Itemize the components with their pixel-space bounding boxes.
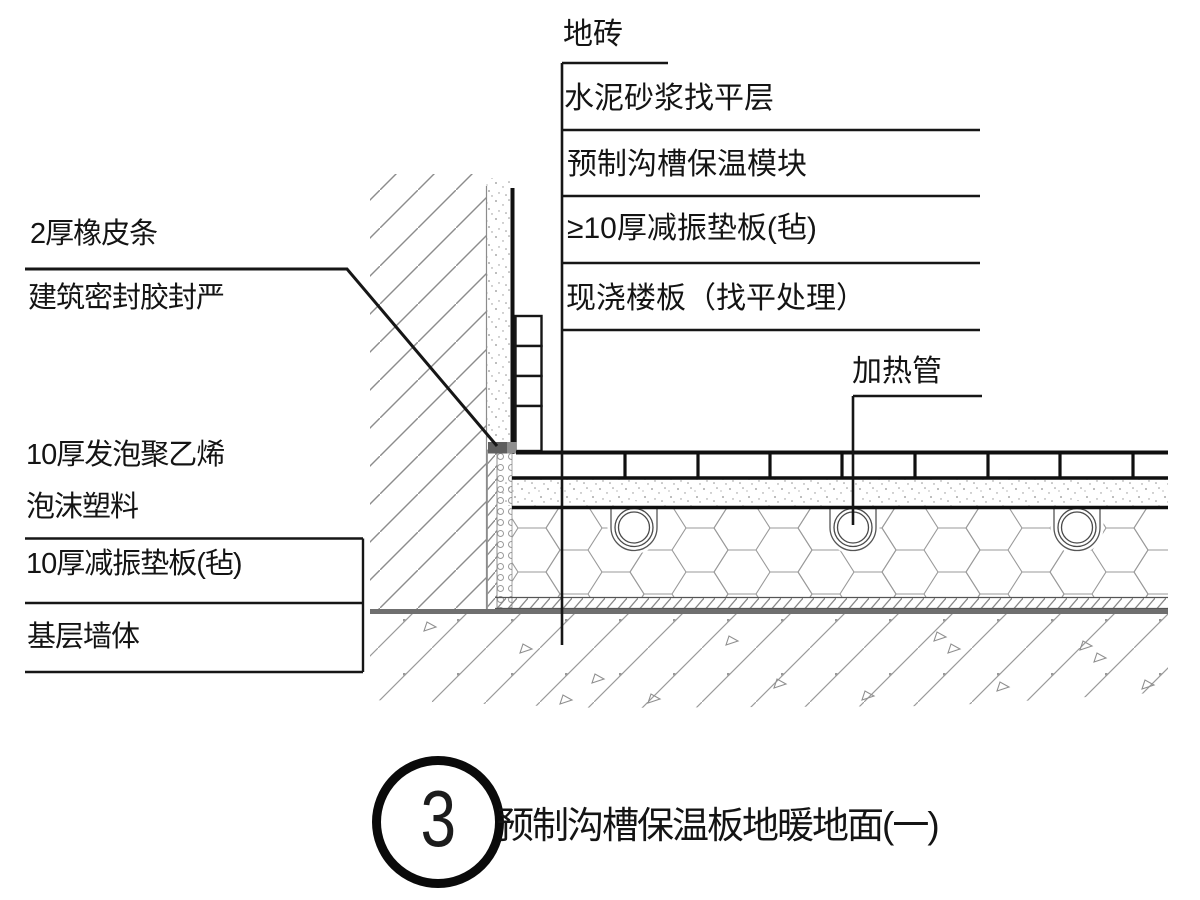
floor-tile-layer — [512, 453, 1168, 479]
callout-rubber-strip: 2厚橡皮条 — [30, 220, 157, 249]
callout-pe-foam-line2: 泡沫塑料 — [26, 493, 138, 522]
callout-pe-foam-line1: 10厚发泡聚乙烯 — [26, 441, 224, 470]
callout-mortar-leveling: 水泥砂浆找平层 — [564, 84, 774, 114]
callout-floor-tile: 地砖 — [563, 20, 623, 50]
callout-damping-pad: ≥10厚减振垫板(毡) — [567, 214, 817, 244]
callout-base-wall: 基层墙体 — [27, 623, 139, 652]
callout-cast-slab: 现浇楼板（找平处理） — [566, 284, 866, 314]
wall-plaster-strip — [486, 178, 511, 448]
sealant-block — [507, 442, 517, 454]
edge-damping-strip — [488, 450, 498, 610]
construction-detail-canvas: 地砖 水泥砂浆找平层 预制沟槽保温模块 ≥10厚减振垫板(毡) 现浇楼板（找平处… — [0, 0, 1200, 900]
detail-number: 3 — [420, 779, 456, 859]
callout-damping-pad-wall: 10厚减振垫板(毡) — [26, 550, 242, 579]
subgrade-hatch — [370, 613, 1168, 709]
skirting-tiles — [516, 316, 542, 451]
callout-groove-module: 预制沟槽保温模块 — [567, 150, 807, 180]
damping-pad-band — [495, 598, 1168, 610]
callout-sealant: 建筑密封胶封严 — [28, 284, 224, 313]
rubber-strip-detail — [488, 442, 507, 454]
detail-title: 预制沟槽保温板地暖地面(一) — [497, 795, 938, 849]
callout-heating-pipe: 加热管 — [852, 357, 942, 387]
detail-number-circle: 3 — [372, 756, 504, 888]
edge-foam-strip — [497, 450, 512, 610]
mortar-layer — [500, 479, 1168, 506]
